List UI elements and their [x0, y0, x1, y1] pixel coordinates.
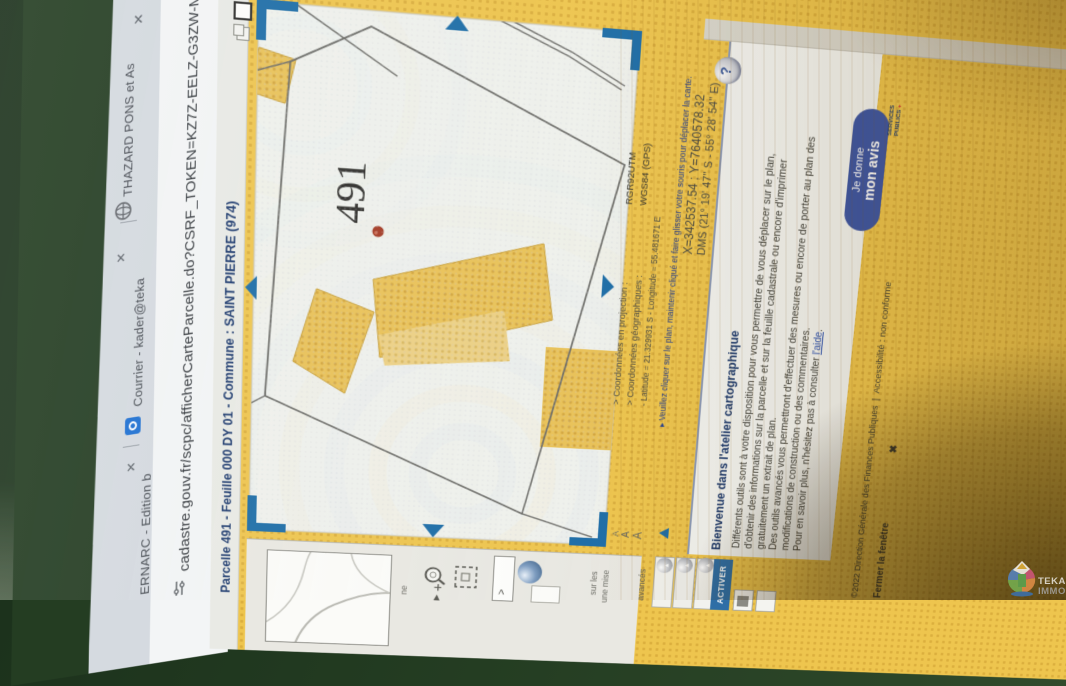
- svg-text:IMMO: IMMO: [1038, 586, 1066, 597]
